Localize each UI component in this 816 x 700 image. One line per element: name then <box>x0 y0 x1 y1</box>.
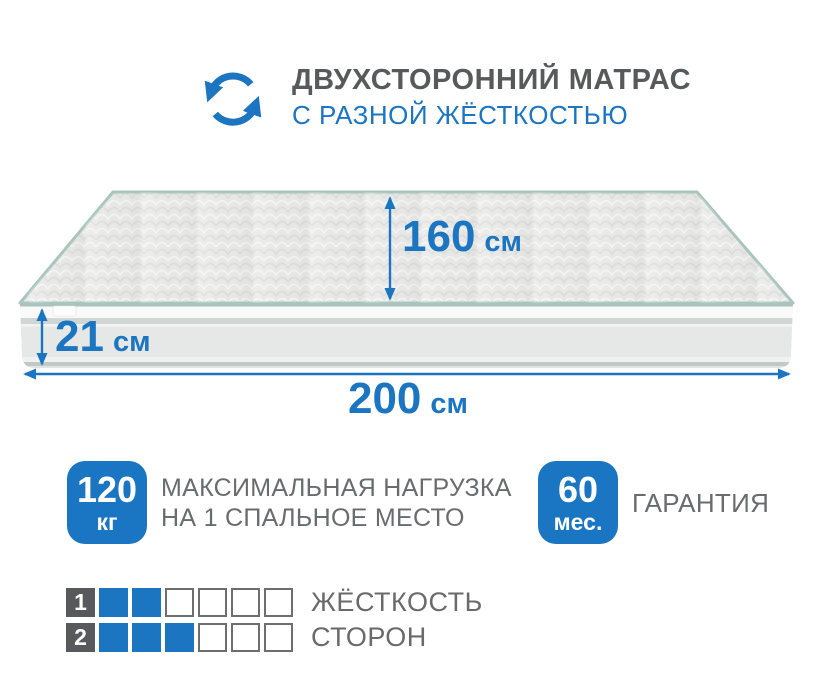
max-load-badge: 120 кг <box>67 461 147 544</box>
firmness-cell-empty <box>231 588 260 617</box>
firmness-cell-empty <box>198 588 227 617</box>
height-value: 21 <box>55 315 104 359</box>
length-value: 200 <box>348 377 421 421</box>
firmness-cell-empty <box>231 623 260 652</box>
header: ДВУХСТОРОННИЙ МАТРАС С РАЗНОЙ ЖЁСТКОСТЬЮ <box>198 60 691 134</box>
firmness-indicator: 1ЖЁСТКОСТЬ2СТОРОН <box>66 587 483 657</box>
firmness-cell-filled <box>132 588 161 617</box>
firmness-cell-filled <box>99 623 128 652</box>
max-load-unit: кг <box>96 511 117 534</box>
firmness-row: 1ЖЁСТКОСТЬ <box>66 587 483 618</box>
page-title: ДВУХСТОРОННИЙ МАТРАС <box>292 65 691 97</box>
mattress-infographic: ДВУХСТОРОННИЙ МАТРАС С РАЗНОЙ ЖЁСТКОСТЬЮ <box>0 0 816 700</box>
header-text: ДВУХСТОРОННИЙ МАТРАС С РАЗНОЙ ЖЁСТКОСТЬЮ <box>292 65 691 129</box>
page-subtitle: С РАЗНОЙ ЖЁСТКОСТЬЮ <box>292 101 691 130</box>
firmness-caption: СТОРОН <box>311 622 427 653</box>
firmness-cell-filled <box>165 623 194 652</box>
firmness-cell-empty <box>198 623 227 652</box>
warranty-value: 60 <box>558 472 598 508</box>
dimension-length-label: 200 см <box>0 377 816 421</box>
warranty-feature: 60 мес. ГАРАНТИЯ <box>538 461 769 544</box>
warranty-unit: мес. <box>554 511 603 534</box>
max-load-feature: 120 кг МАКСИМАЛЬНАЯ НАГРУЗКА НА 1 СПАЛЬН… <box>67 461 512 544</box>
max-load-label: МАКСИМАЛЬНАЯ НАГРУЗКА НА 1 СПАЛЬНОЕ МЕСТ… <box>161 473 512 533</box>
firmness-cell-empty <box>264 588 293 617</box>
max-load-label-line1: МАКСИМАЛЬНАЯ НАГРУЗКА <box>161 474 512 502</box>
firmness-cell-filled <box>132 623 161 652</box>
firmness-rows: 1ЖЁСТКОСТЬ2СТОРОН <box>66 587 483 653</box>
firmness-cell-empty <box>264 623 293 652</box>
length-unit: см <box>430 390 468 419</box>
firmness-row: 2СТОРОН <box>66 622 483 653</box>
firmness-cell-filled <box>99 588 128 617</box>
firmness-row-number: 1 <box>66 588 95 617</box>
depth-unit: см <box>484 228 522 257</box>
depth-value: 160 <box>402 215 475 259</box>
max-load-label-line2: НА 1 СПАЛЬНОЕ МЕСТО <box>161 504 465 532</box>
two-sided-rotation-icon <box>198 60 268 134</box>
warranty-label: ГАРАНТИЯ <box>632 488 769 518</box>
max-load-value: 120 <box>77 472 137 508</box>
firmness-row-number: 2 <box>66 623 95 652</box>
firmness-caption: ЖЁСТКОСТЬ <box>311 587 483 618</box>
dimension-depth-label: 160 см <box>402 215 522 259</box>
firmness-cell-empty <box>165 588 194 617</box>
dimension-height-label: 21 см <box>55 315 151 359</box>
warranty-badge: 60 мес. <box>538 461 618 544</box>
mattress-illustration: 160 см 21 см 200 см <box>0 185 816 420</box>
height-unit: см <box>113 328 151 357</box>
